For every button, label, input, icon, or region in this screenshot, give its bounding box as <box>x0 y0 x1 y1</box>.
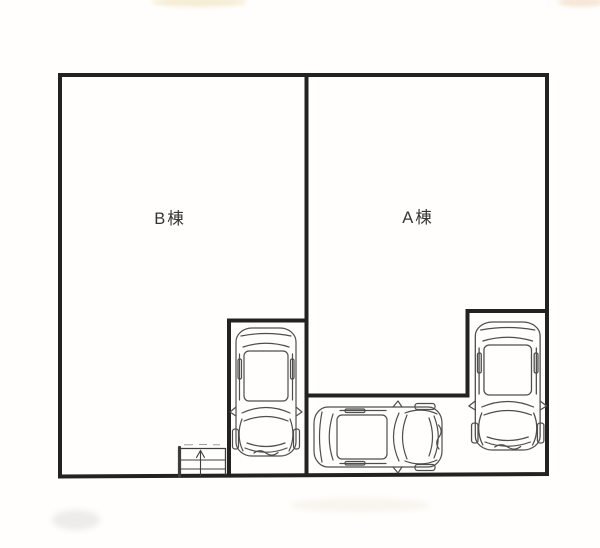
floor-plan-drawing <box>0 0 600 548</box>
building-b-label: B棟 <box>144 205 196 229</box>
staircase-steps <box>181 460 225 469</box>
building-a-lower-wall <box>307 311 548 396</box>
car-top-view-right-icon <box>469 322 547 450</box>
car-top-view-left-icon <box>230 328 302 456</box>
staircase <box>179 444 226 476</box>
car-top-view-center-icon <box>314 401 442 473</box>
outer-boundary-wall <box>60 75 547 477</box>
building-a-label: A棟 <box>392 204 444 228</box>
site-plan-scan: B棟 A棟 <box>0 0 600 548</box>
staircase-up-arrow-icon <box>197 451 205 477</box>
